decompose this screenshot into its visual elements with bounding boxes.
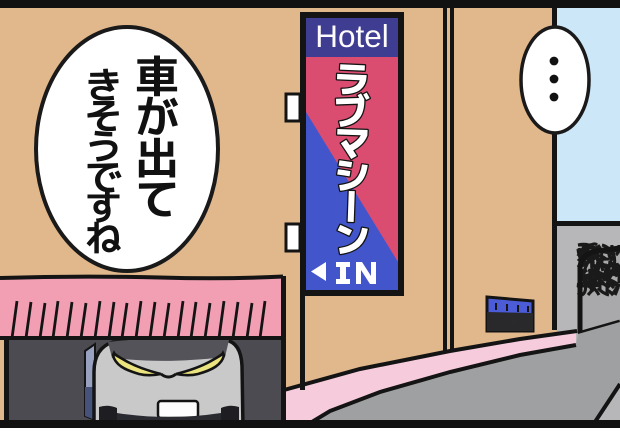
svg-text:Hotel: Hotel <box>315 18 389 54</box>
